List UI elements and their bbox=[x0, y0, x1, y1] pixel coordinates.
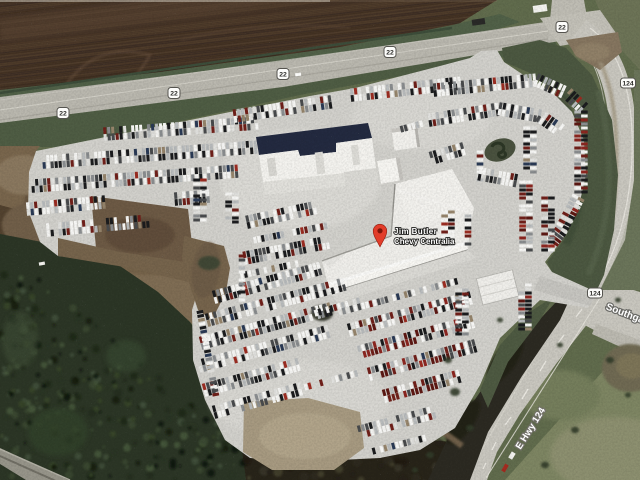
svg-text:22: 22 bbox=[170, 90, 178, 97]
svg-text:22: 22 bbox=[386, 49, 394, 56]
svg-text:22: 22 bbox=[279, 71, 287, 78]
svg-text:22: 22 bbox=[558, 24, 566, 31]
svg-text:22: 22 bbox=[59, 110, 67, 117]
svg-text:124: 124 bbox=[589, 290, 601, 297]
svg-text:124: 124 bbox=[622, 80, 634, 87]
svg-text:Jim Butler: Jim Butler bbox=[394, 227, 437, 236]
svg-text:Chevy Centralia: Chevy Centralia bbox=[394, 237, 455, 246]
